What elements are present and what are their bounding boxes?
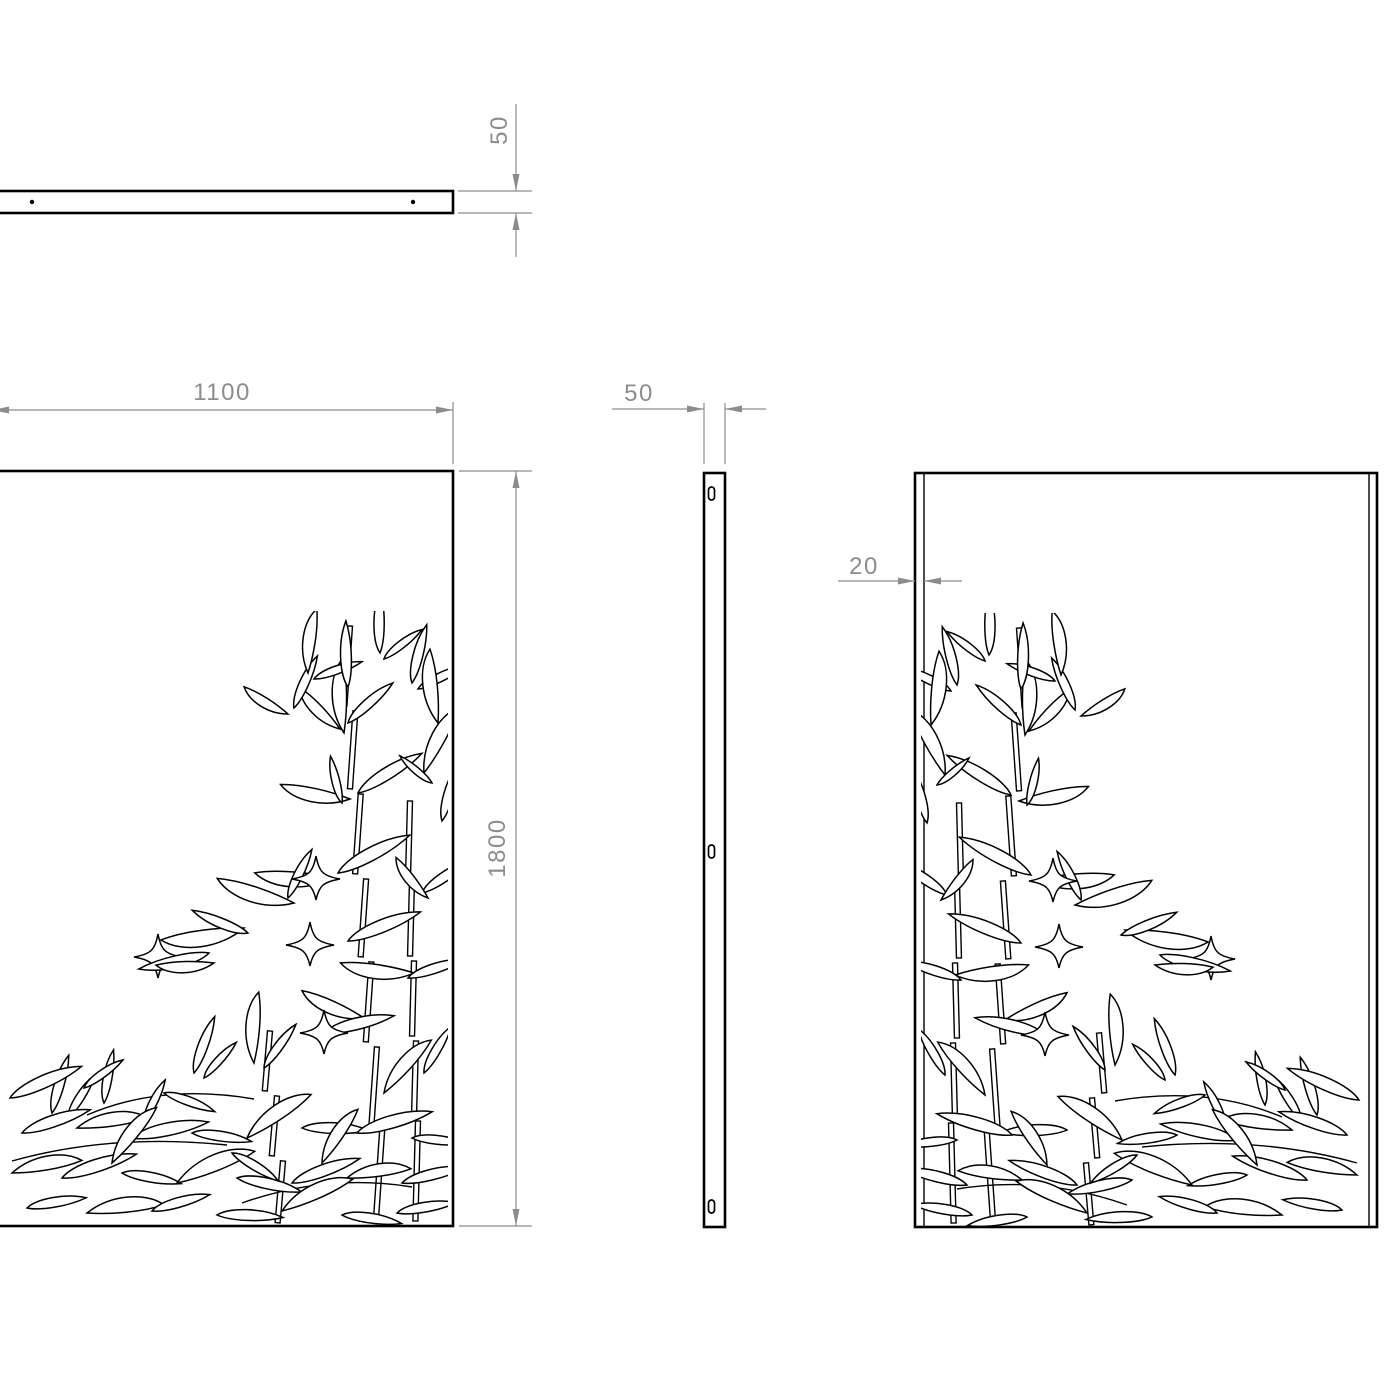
dimension-width: 1100 <box>0 379 453 464</box>
arrowhead-icon <box>513 174 520 191</box>
arrowhead-icon <box>725 406 742 413</box>
dimension-label-top-thickness: 50 <box>486 115 513 145</box>
technical-drawing-canvas: 50 1100 1800 <box>0 0 1384 1384</box>
dimension-label-height: 1800 <box>484 818 511 877</box>
arrowhead-icon <box>513 213 520 230</box>
side-view: 50 <box>612 380 766 1227</box>
dimension-label-side-thickness: 50 <box>624 380 654 407</box>
dimension-label-fold-depth: 20 <box>849 553 879 580</box>
mounting-hole <box>411 200 415 204</box>
arrowhead-icon <box>513 1209 520 1226</box>
dimension-label-width: 1100 <box>193 379 251 406</box>
back-view: 20 <box>838 473 1377 1232</box>
mounting-hole <box>30 200 34 204</box>
dimension-height: 1800 <box>459 471 532 1226</box>
dimension-top-thickness: 50 <box>458 104 532 257</box>
mounting-slot <box>709 487 715 500</box>
arrowhead-icon <box>687 406 704 413</box>
arrowhead-icon <box>513 471 520 488</box>
mounting-slot <box>709 1200 715 1213</box>
dimension-side-thickness: 50 <box>612 380 766 464</box>
arrowhead-icon <box>898 578 915 585</box>
top-view-panel-outline <box>0 191 453 213</box>
front-view: 1100 1800 <box>0 379 532 1230</box>
arrowhead-icon <box>0 407 9 414</box>
mounting-slot <box>709 845 715 858</box>
top-view: 50 <box>0 104 532 257</box>
arrowhead-icon <box>436 407 453 414</box>
